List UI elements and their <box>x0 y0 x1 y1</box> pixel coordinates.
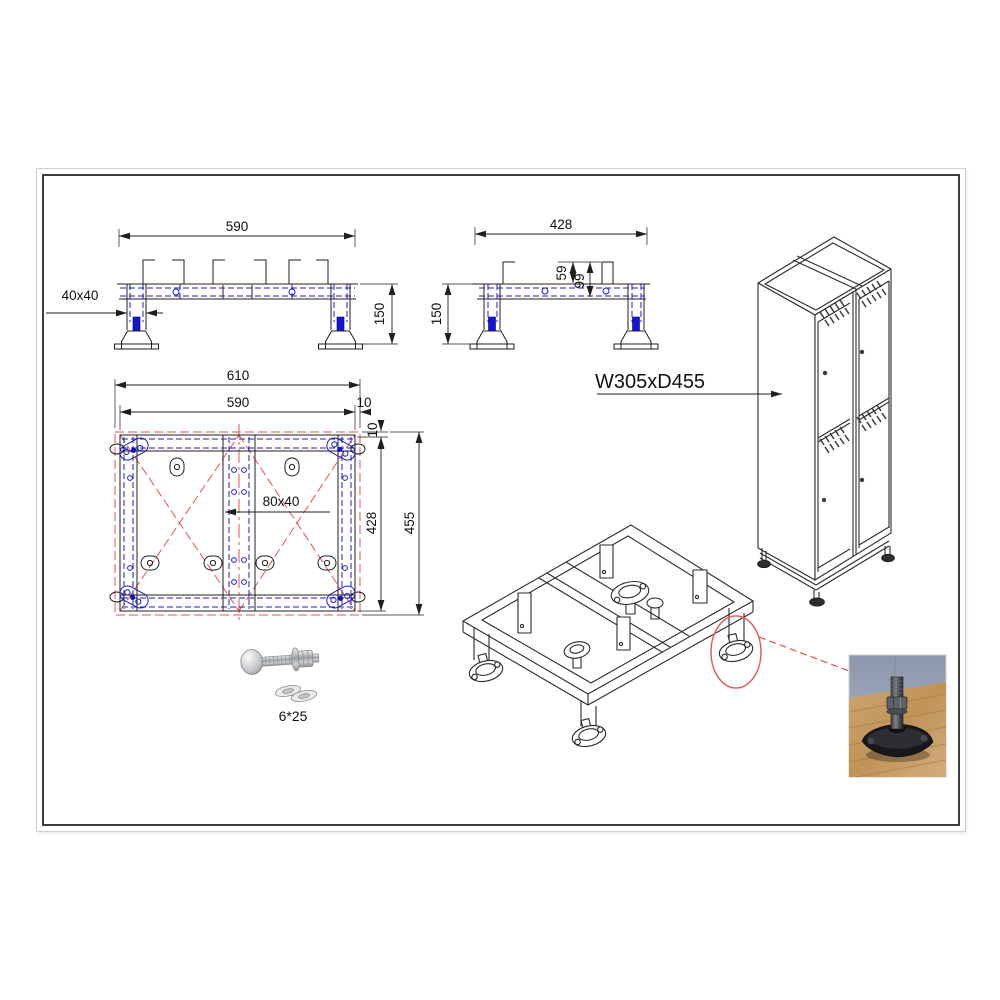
technical-drawing-canvas: 590 <box>0 0 1000 1000</box>
front-hidden-lines <box>120 284 355 322</box>
plan-overall-depth-dim: 455 <box>402 512 417 535</box>
plan-frame-width-dim: 590 <box>227 395 250 410</box>
plan-view: 610 590 10 <box>110 368 424 622</box>
cabinet-size-label: W305xD455 <box>595 371 705 393</box>
clip-tab <box>256 556 274 570</box>
drawing-sheet: 590 <box>0 0 1000 1000</box>
foot-nut <box>887 697 907 709</box>
bolt-nut <box>298 650 313 667</box>
fastener-view: 6*25 <box>240 645 320 724</box>
bolt-size-label: 6*25 <box>279 708 308 724</box>
front-height-dim: 150 <box>372 303 387 326</box>
plan-overall-width-dim: 610 <box>227 368 250 383</box>
bracket-dim: 59 <box>554 265 569 280</box>
corner-legs <box>465 608 755 750</box>
cabinet-side-panel <box>758 283 815 580</box>
side-view: 428 <box>429 217 658 349</box>
side-hidden-lines <box>479 284 645 322</box>
side-height-dim: 150 <box>429 303 444 326</box>
door-lock <box>860 350 864 354</box>
plan-frame-depth-dim: 428 <box>364 512 379 535</box>
clip-tab <box>170 458 184 476</box>
clip-tab <box>204 556 222 570</box>
side-width-dim: 428 <box>550 217 573 232</box>
plan-hidden-rails <box>122 437 353 609</box>
plan-side-gap-dim: 10 <box>356 395 371 410</box>
mounting-hooks <box>143 260 328 284</box>
red-diagonals <box>120 435 355 611</box>
detail-leader-line <box>759 637 849 671</box>
foot-photo <box>849 655 946 777</box>
door-lock <box>822 498 826 502</box>
front-width-dim: 590 <box>226 219 249 234</box>
center-rail-profile-label: 80x40 <box>263 494 300 509</box>
adjustable-foot-front-left <box>115 317 159 349</box>
washers <box>274 683 318 703</box>
front-view: 590 <box>46 219 398 349</box>
adjustable-foot-side-right <box>614 317 658 349</box>
clip-tab <box>141 556 159 570</box>
locker-cabinet: W305xD455 <box>595 237 895 606</box>
adjustable-foot-front-right <box>319 317 363 349</box>
plan-top-gap-dim: 10 <box>365 422 380 437</box>
clip-tab <box>285 458 299 476</box>
door-lock <box>860 478 864 482</box>
bracket-total-dim: 99 <box>572 273 587 288</box>
bolt-head <box>240 649 264 675</box>
leg-profile-label: 40x40 <box>62 288 99 303</box>
door-lock <box>823 371 827 375</box>
